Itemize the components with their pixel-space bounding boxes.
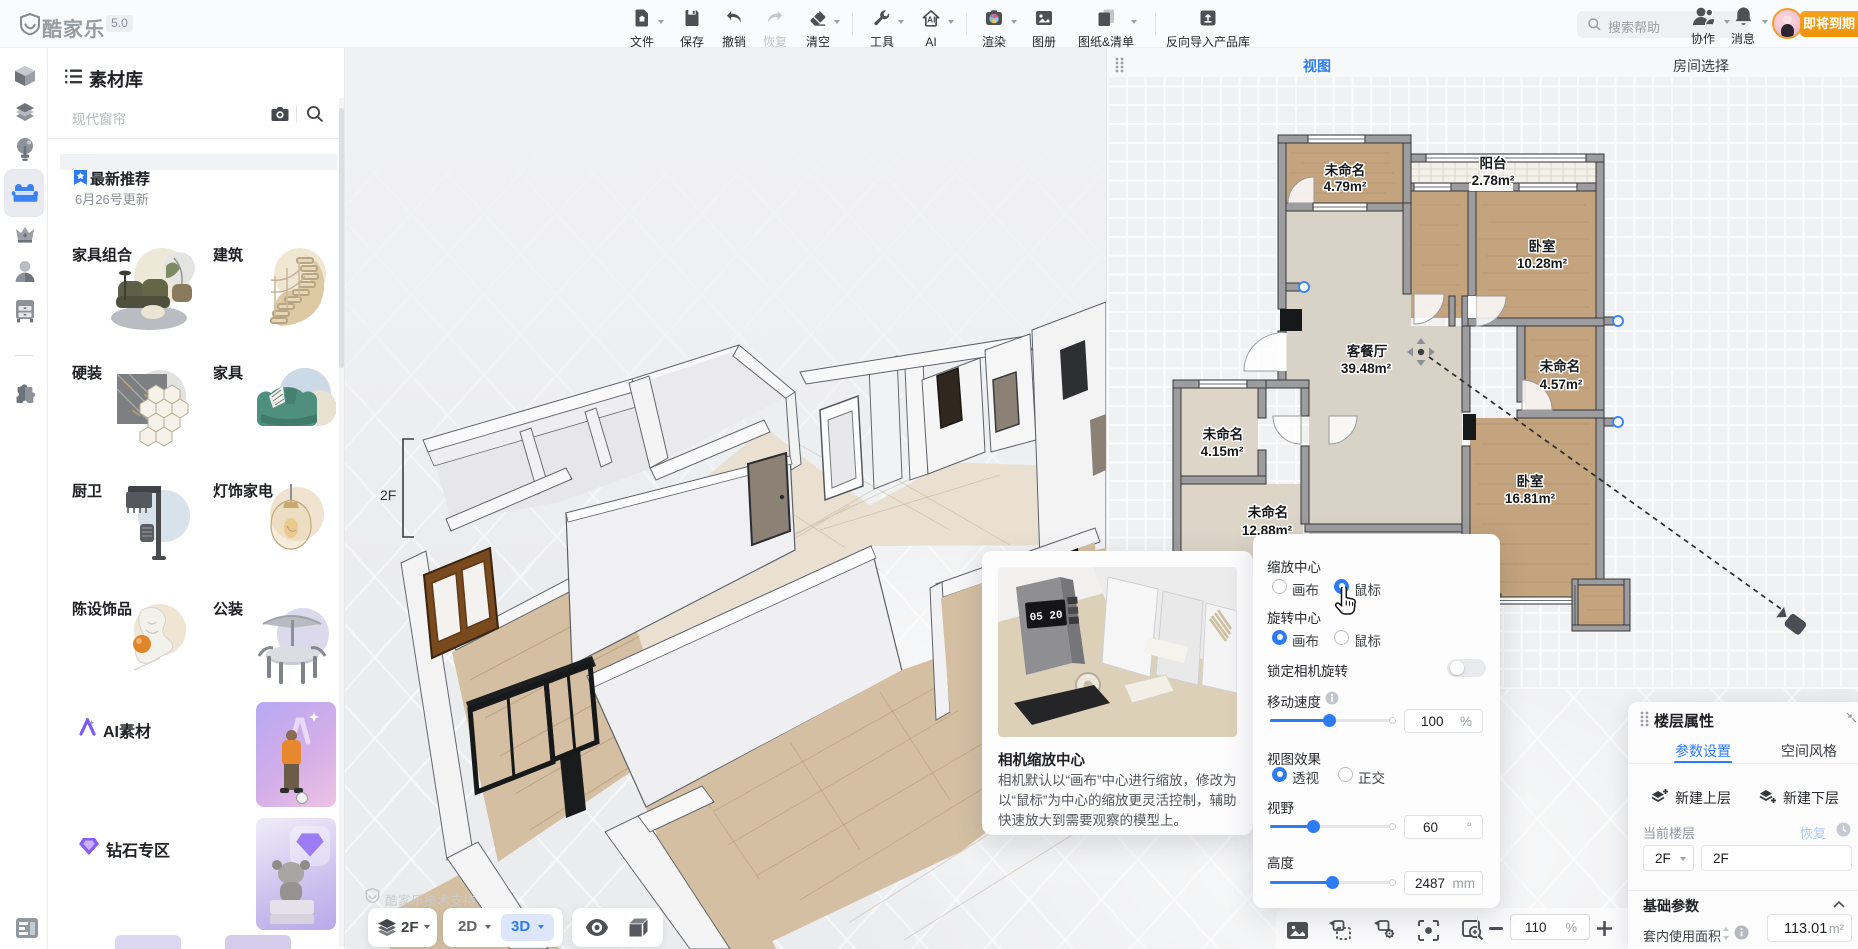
svg-text:4.15m²: 4.15m²: [1201, 444, 1244, 459]
svg-text:阳台: 阳台: [1480, 155, 1507, 171]
svg-text:未命名: 未命名: [1203, 426, 1244, 442]
svg-text:未命名: 未命名: [1540, 358, 1581, 374]
svg-text:AI: AI: [927, 15, 936, 25]
svg-text:未命名: 未命名: [1248, 504, 1289, 520]
svg-text:16.81m²: 16.81m²: [1505, 491, 1556, 506]
svg-text:2.78m²: 2.78m²: [1472, 173, 1515, 188]
svg-text:客餐厅: 客餐厅: [1346, 343, 1388, 359]
svg-text:未命名: 未命名: [1325, 162, 1366, 178]
svg-text:39.48m²: 39.48m²: [1341, 361, 1392, 376]
svg-text:卧室: 卧室: [1529, 238, 1557, 254]
svg-text:10.28m²: 10.28m²: [1517, 256, 1568, 271]
svg-text:卧室: 卧室: [1517, 473, 1545, 489]
svg-text:4.57m²: 4.57m²: [1540, 377, 1583, 392]
svg-text:4.79m²: 4.79m²: [1324, 179, 1367, 194]
